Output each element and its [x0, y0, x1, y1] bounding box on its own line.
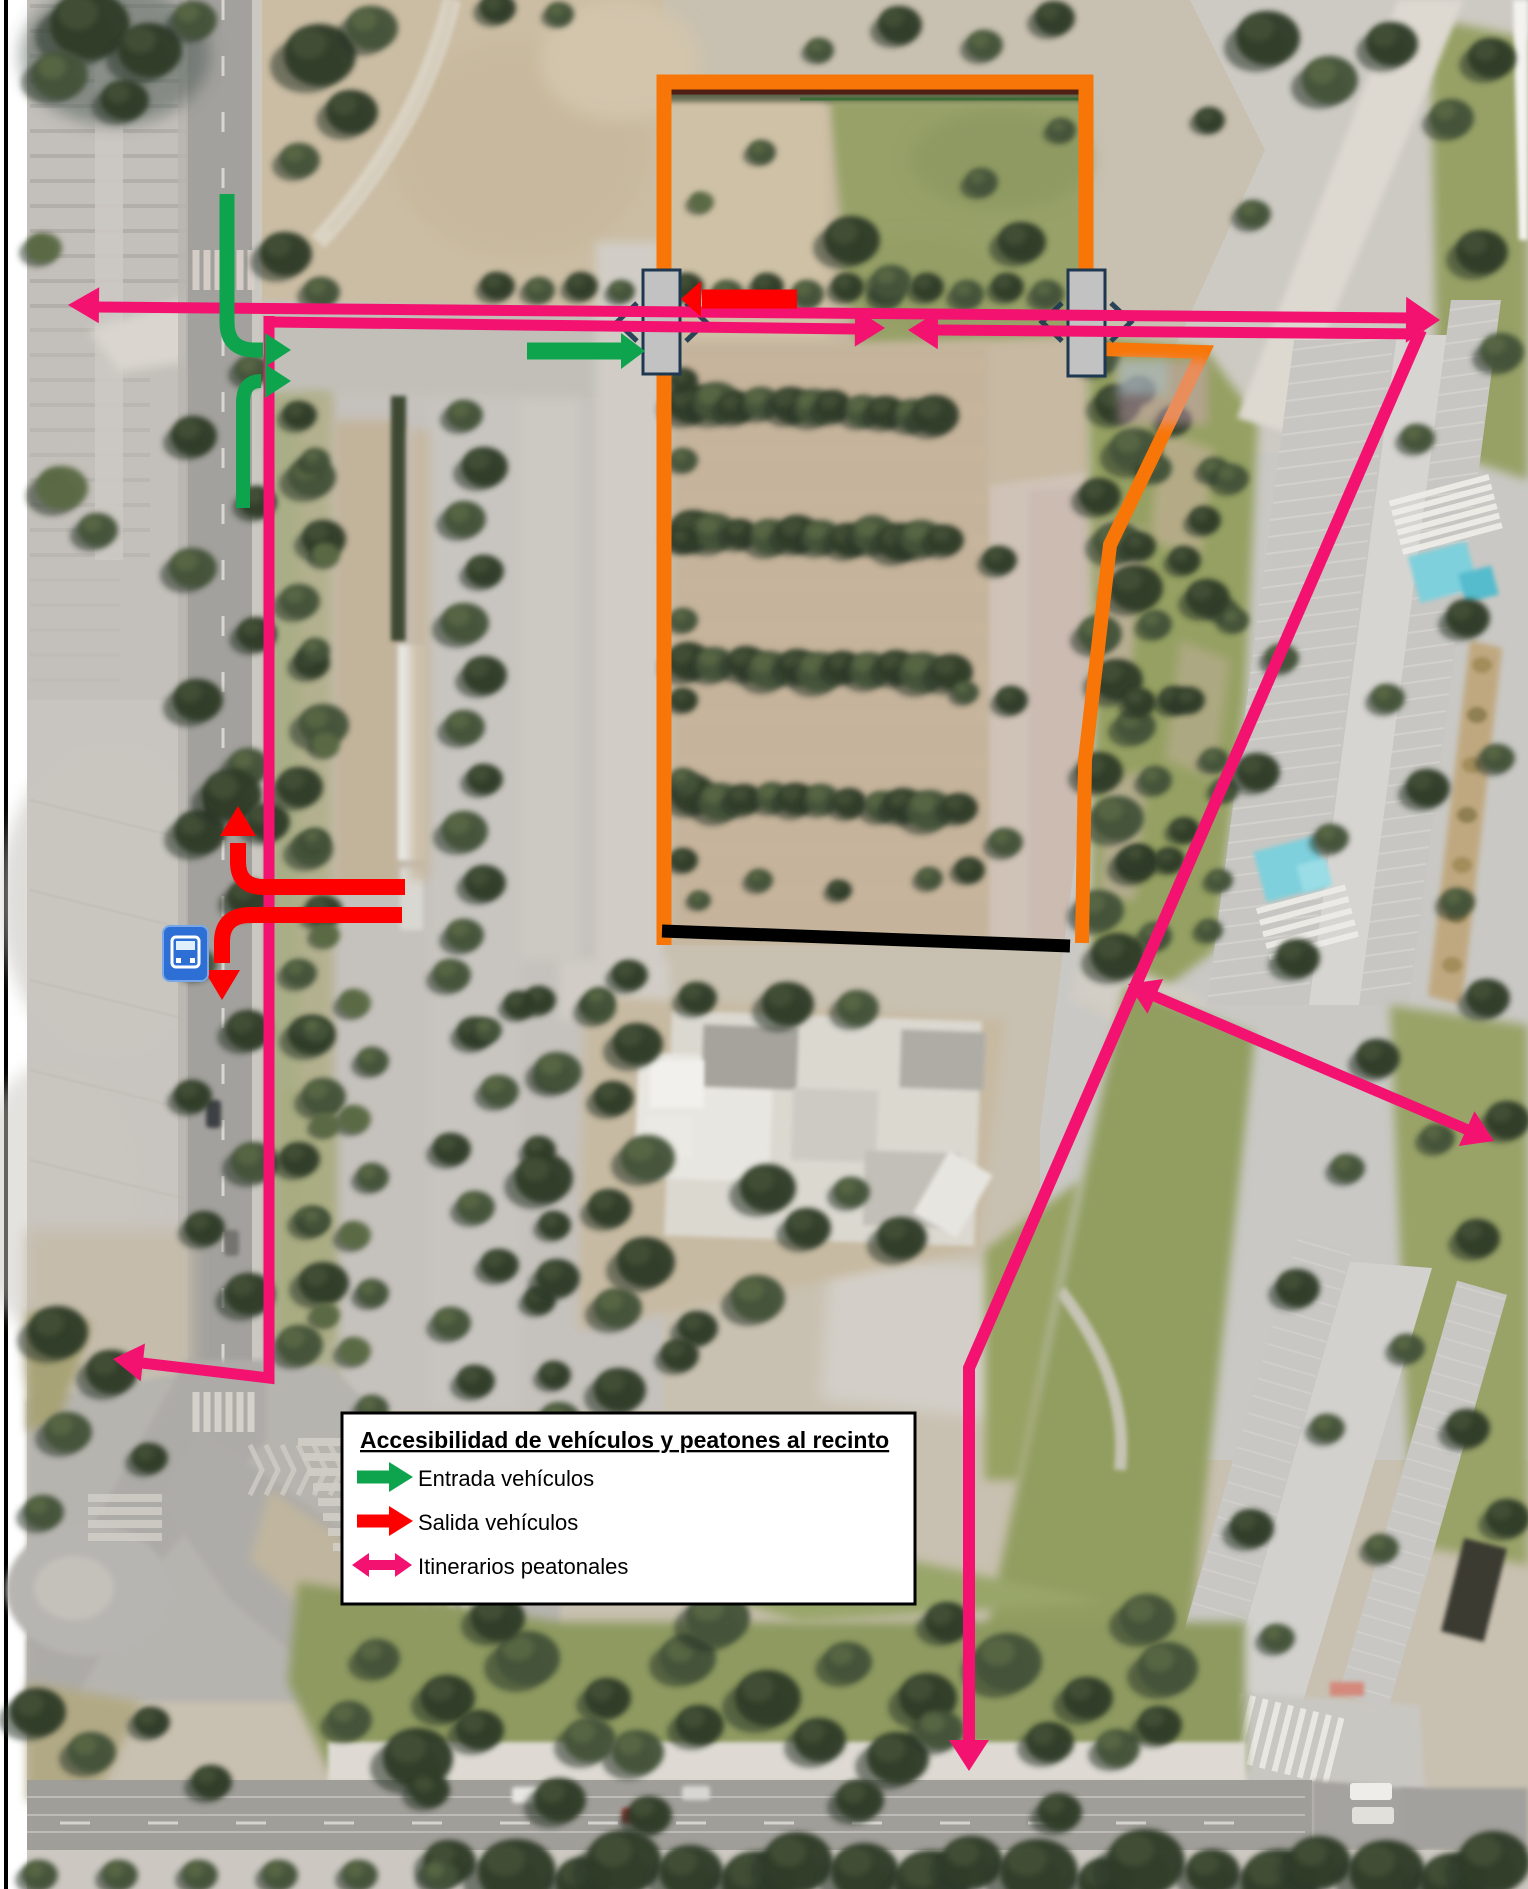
svg-text:Accesibilidad de vehículos y p: Accesibilidad de vehículos y peatones al…: [360, 1427, 889, 1453]
svg-text:Salida vehículos: Salida vehículos: [418, 1510, 578, 1535]
svg-text:Entrada vehículos: Entrada vehículos: [418, 1466, 594, 1491]
svg-text:Itinerarios peatonales: Itinerarios peatonales: [418, 1554, 628, 1579]
